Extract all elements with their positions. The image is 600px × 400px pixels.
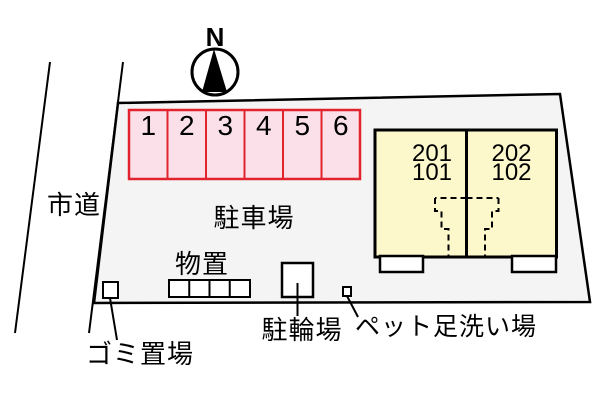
parking-stall-number: 6 [322,111,361,141]
parking-stall-number: 5 [283,111,322,141]
pet-wash-label: ペット足洗い場 [352,313,540,341]
storage-label: 物置 [162,250,242,278]
porch-left [380,256,423,272]
garbage-box [103,282,118,298]
pet-wash-box [343,287,351,296]
parking-stall-number: 2 [168,111,207,141]
site-plan: N 市道 1 2 3 4 5 6 駐車場 201 101 202 102 物置 … [0,0,600,400]
road-label: 市道 [42,191,106,219]
building-unit-label: 201 101 [387,144,477,182]
porch-right [512,256,556,272]
parking-stall-number: 4 [245,111,284,141]
garbage-label: ゴミ置場 [85,340,195,368]
compass-north-label: N [200,24,230,50]
garbage-pointer-line [110,298,117,340]
bicycle-parking-label: 駐輪場 [252,316,352,344]
parking-label: 駐車場 [204,204,304,232]
compass-needle-icon [202,49,227,92]
building-unit-label: 202 102 [466,144,557,182]
parking-stall-number: 3 [206,111,245,141]
parking-stall-number: 1 [129,111,168,141]
